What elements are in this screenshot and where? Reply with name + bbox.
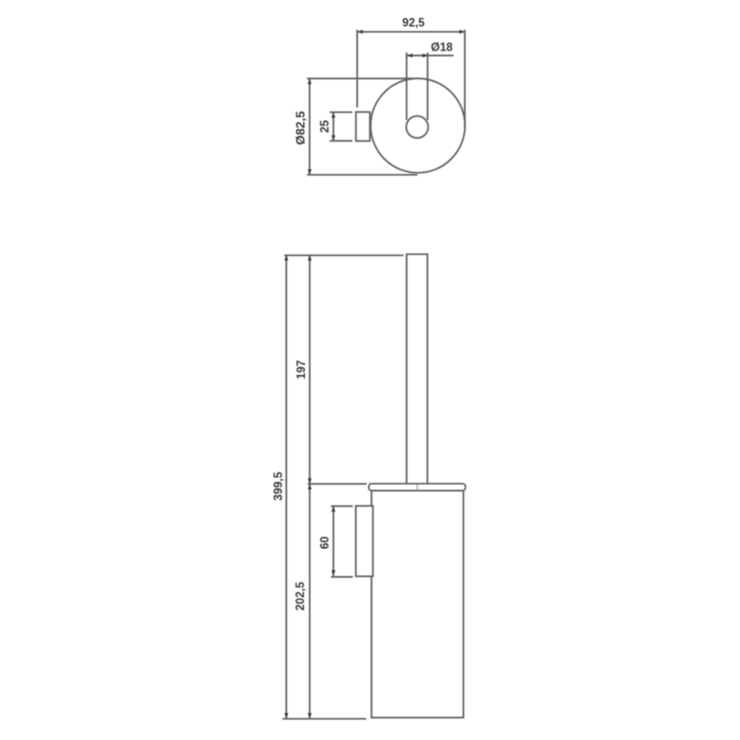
svg-text:197: 197 [296,360,308,379]
svg-text:Ø82,5: Ø82,5 [296,110,308,145]
svg-text:Ø18: Ø18 [431,42,453,54]
svg-text:202,5: 202,5 [295,581,307,610]
svg-text:92,5: 92,5 [402,18,425,30]
svg-text:25: 25 [319,120,331,133]
svg-text:60: 60 [320,536,332,549]
svg-text:399,5: 399,5 [273,471,285,500]
